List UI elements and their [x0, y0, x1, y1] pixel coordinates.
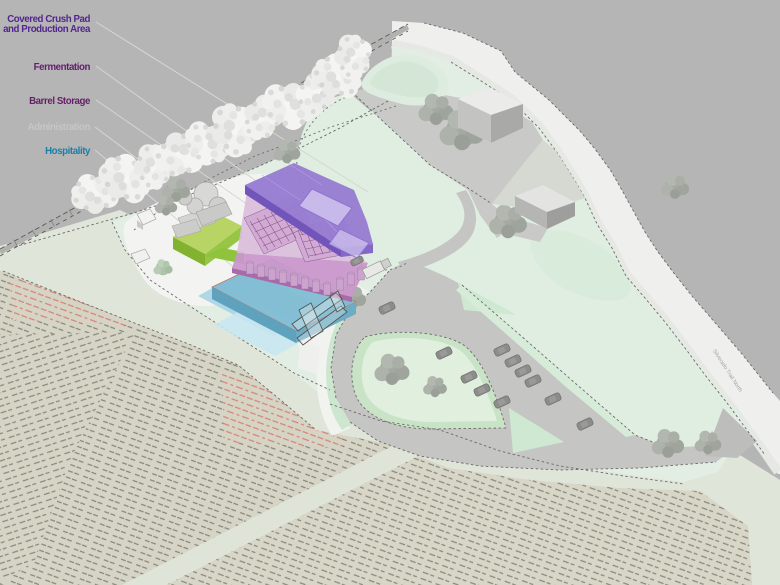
svg-text:Hospitality: Hospitality — [45, 146, 91, 157]
svg-text:Barrel Storage: Barrel Storage — [29, 96, 91, 107]
svg-text:and Production Area: and Production Area — [3, 24, 91, 35]
svg-text:Administration: Administration — [28, 122, 91, 133]
svg-text:Fermentation: Fermentation — [34, 62, 91, 73]
